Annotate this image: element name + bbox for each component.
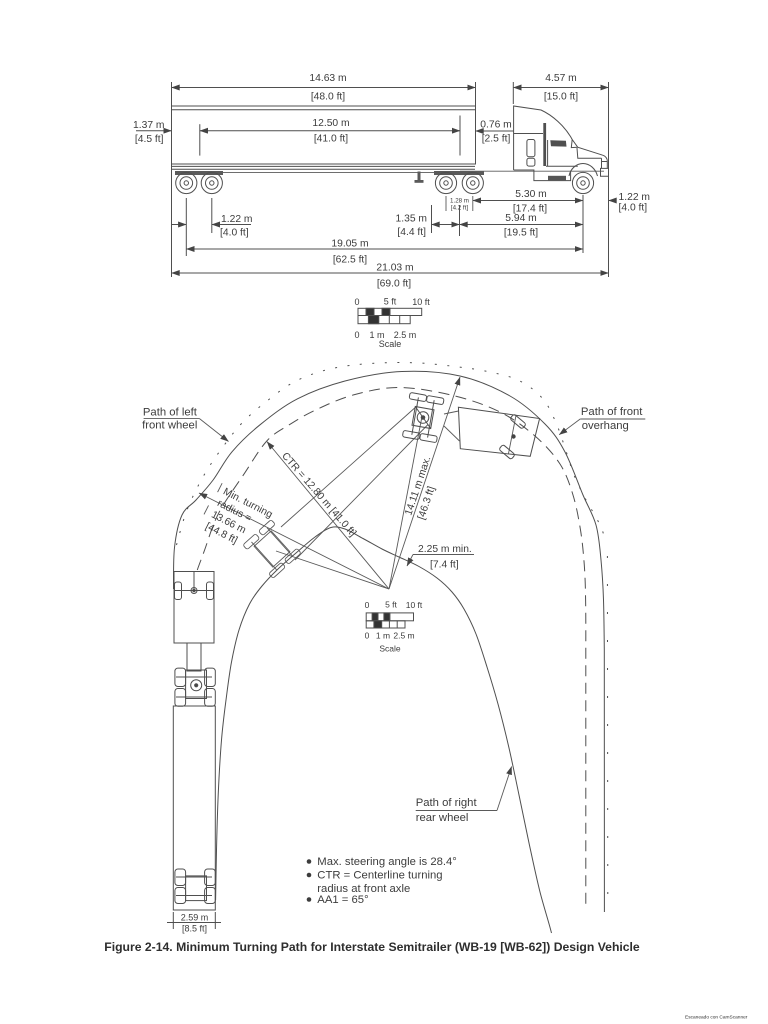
svg-text:CTR = 12.80 m [41.0 ft]: CTR = 12.80 m [41.0 ft]: [279, 451, 358, 539]
svg-text:front wheel: front wheel: [142, 420, 197, 432]
svg-text:[69.0 ft]: [69.0 ft]: [377, 279, 411, 290]
svg-text:0.76 m: 0.76 m: [480, 120, 511, 131]
svg-text:Scale: Scale: [379, 339, 402, 349]
svg-text:[4.0 ft]: [4.0 ft]: [619, 203, 648, 214]
svg-text:Path of right: Path of right: [416, 797, 478, 809]
svg-text:[62.5 ft]: [62.5 ft]: [333, 255, 367, 266]
svg-text:1.22 m: 1.22 m: [221, 214, 252, 225]
svg-text:[19.5 ft]: [19.5 ft]: [504, 228, 538, 239]
svg-text:[4.5 ft]: [4.5 ft]: [135, 134, 164, 145]
svg-text:10 ft: 10 ft: [406, 600, 423, 610]
svg-text:[15.0 ft]: [15.0 ft]: [544, 92, 578, 103]
svg-text:1.35 m: 1.35 m: [396, 214, 427, 225]
svg-text:Path of left: Path of left: [143, 407, 198, 419]
svg-text:[41.0 ft]: [41.0 ft]: [314, 134, 348, 145]
svg-text:5 ft: 5 ft: [385, 600, 397, 610]
svg-text:CTR = Centerline turning: CTR = Centerline turning: [317, 870, 442, 882]
svg-text:[4.4 ft]: [4.4 ft]: [397, 227, 426, 238]
svg-text:5 ft: 5 ft: [384, 297, 397, 307]
svg-text:Figure 2-14. Minimum Turning P: Figure 2-14. Minimum Turning Path for In…: [104, 940, 640, 954]
svg-text:AA1 = 65°: AA1 = 65°: [317, 894, 368, 906]
svg-text:[7.4 ft]: [7.4 ft]: [430, 560, 459, 571]
svg-text:rear wheel: rear wheel: [416, 812, 469, 824]
svg-text:[48.0 ft]: [48.0 ft]: [311, 92, 345, 103]
svg-text:Escaneado con CamScanner: Escaneado con CamScanner: [685, 1015, 748, 1021]
svg-text:1.37 m: 1.37 m: [133, 120, 164, 131]
svg-text:[2.5 ft]: [2.5 ft]: [482, 134, 511, 145]
svg-text:21.03 m: 21.03 m: [376, 263, 413, 274]
svg-text:[8.5 ft]: [8.5 ft]: [182, 924, 207, 934]
svg-text:2.25 m min.: 2.25 m min.: [418, 544, 472, 555]
svg-text:1.28 m: 1.28 m: [450, 198, 469, 205]
svg-text:Scale: Scale: [379, 644, 401, 654]
svg-text:5.94 m: 5.94 m: [505, 213, 536, 224]
svg-text:2.5 m: 2.5 m: [393, 631, 414, 641]
svg-text:0: 0: [354, 297, 359, 307]
svg-text:5.30 m: 5.30 m: [515, 189, 546, 200]
svg-text:1 m: 1 m: [376, 631, 390, 641]
svg-text:12.50 m: 12.50 m: [312, 118, 349, 129]
svg-text:Max. steering angle is 28.4°: Max. steering angle is 28.4°: [317, 856, 457, 868]
svg-text:overhang: overhang: [582, 420, 629, 432]
svg-text:1.22 m: 1.22 m: [619, 192, 650, 203]
svg-text:2.59 m: 2.59 m: [181, 913, 209, 923]
svg-text:0: 0: [365, 631, 370, 641]
svg-text:0: 0: [365, 600, 370, 610]
svg-text:0: 0: [354, 330, 359, 340]
svg-text:4.57 m: 4.57 m: [545, 73, 576, 84]
svg-text:Path of front: Path of front: [581, 406, 643, 418]
svg-text:14.63 m: 14.63 m: [309, 73, 346, 84]
svg-text:19.05 m: 19.05 m: [331, 239, 368, 250]
svg-text:10 ft: 10 ft: [412, 297, 430, 307]
svg-text:[4.0 ft]: [4.0 ft]: [220, 228, 249, 239]
